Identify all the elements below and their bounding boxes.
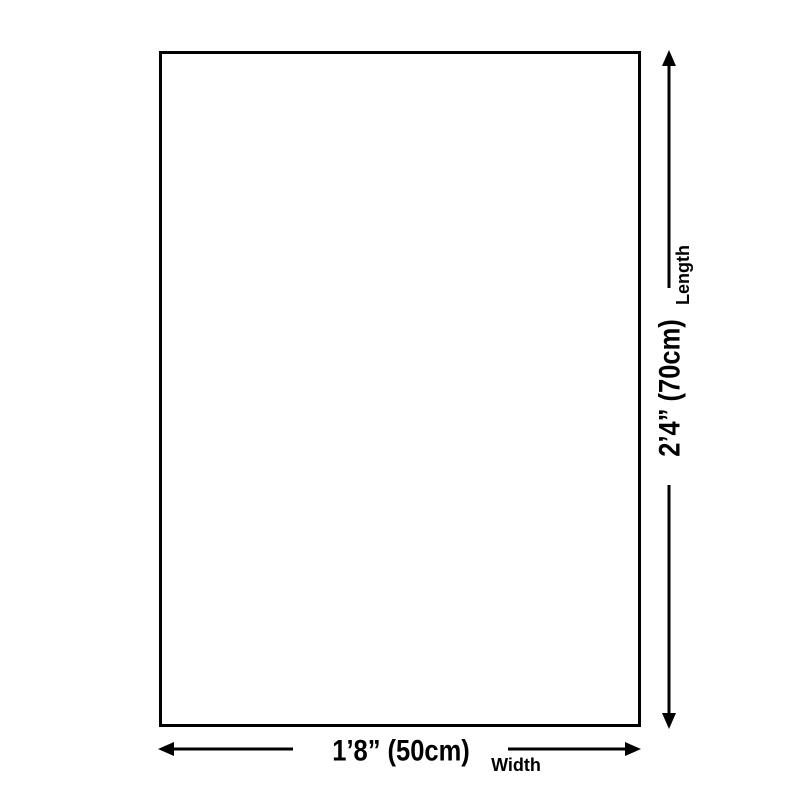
length-axis-label: Length bbox=[674, 245, 694, 305]
arrow-right-head-icon bbox=[625, 742, 641, 756]
length-arrow-bottom-line bbox=[668, 485, 671, 715]
width-axis-label: Width bbox=[491, 756, 541, 776]
length-value-label: 2’4” (70cm) bbox=[654, 319, 687, 456]
arrow-down-head-icon bbox=[662, 713, 676, 729]
length-arrow-top-line bbox=[668, 62, 671, 288]
product-dimension-diagram: 2’4” (70cm) Length 1’8” (50cm) Width bbox=[0, 0, 800, 800]
width-arrow-left-line bbox=[170, 748, 293, 751]
width-arrow-right-line bbox=[508, 748, 627, 751]
width-value-label: 1’8” (50cm) bbox=[332, 735, 469, 768]
